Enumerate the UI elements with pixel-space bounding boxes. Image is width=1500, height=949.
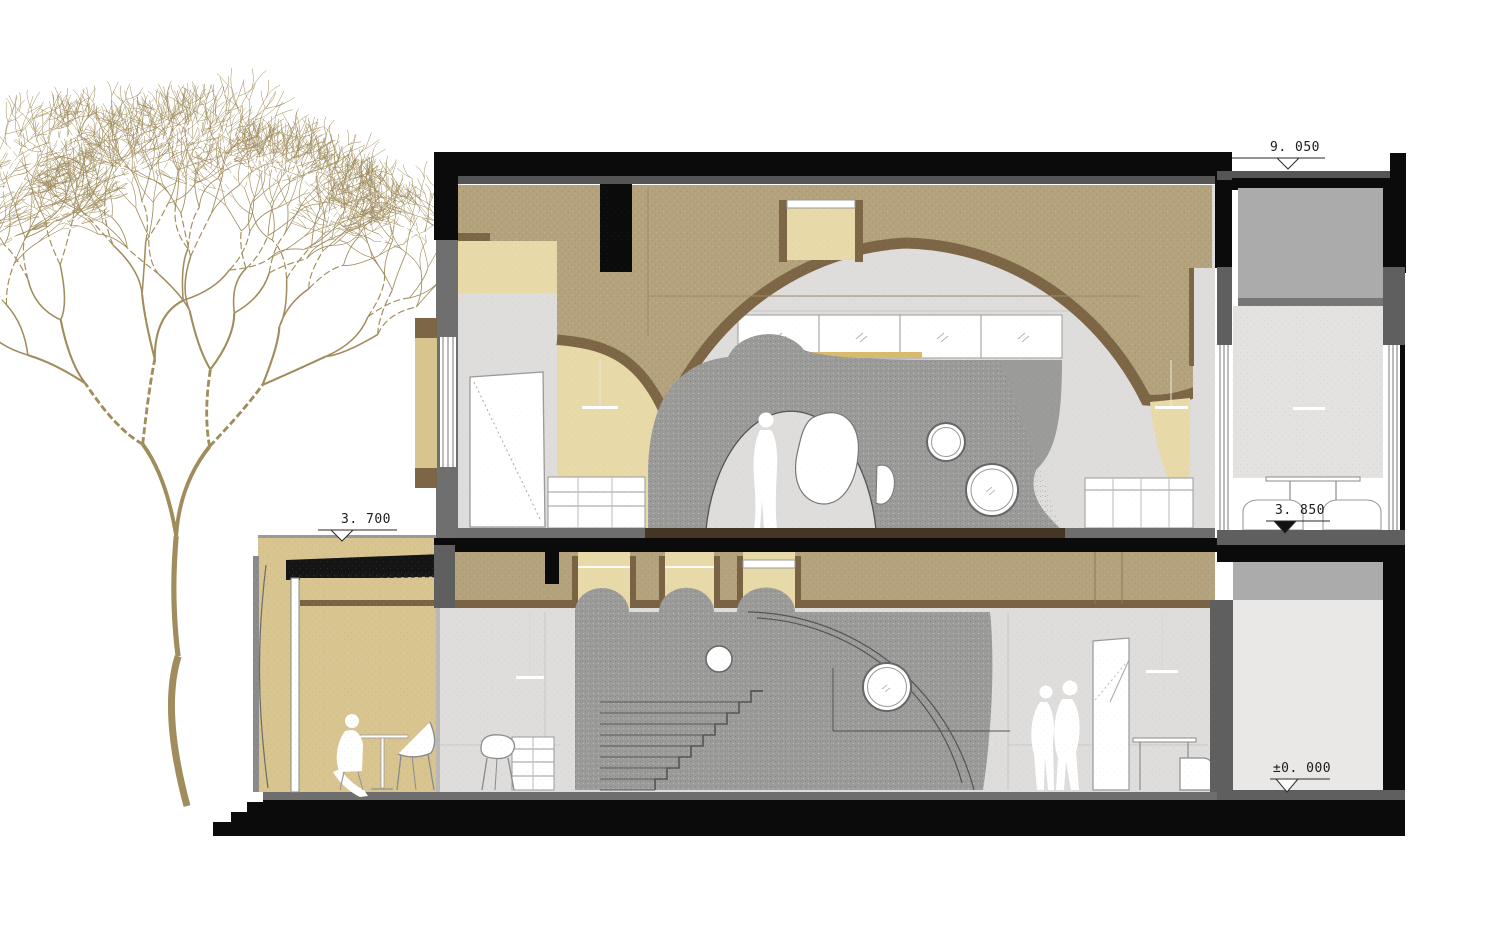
- pendant-lamp: [1293, 407, 1325, 410]
- balcony-parapet: [415, 318, 437, 488]
- level-annotation-roof: 9. 050: [1255, 140, 1335, 155]
- level-annotation-upper-floor: 3. 850: [1268, 503, 1332, 518]
- floor-slab: [434, 528, 1232, 552]
- window-mullion-divider: [1217, 345, 1232, 530]
- ceiling-column: [545, 552, 559, 584]
- texture-overlay: [455, 185, 1215, 530]
- elevator-box: [1238, 188, 1383, 298]
- lower-ceiling-band: [448, 552, 1215, 614]
- window-mullion-left: [440, 337, 456, 467]
- texture-overlay: [437, 608, 1215, 792]
- architectural-section-drawing: 9. 050 3. 700 3. 850 ±0. 000: [0, 0, 1500, 949]
- stair-shaft: [1217, 153, 1406, 800]
- window-mullion-shaft-right: [1386, 345, 1405, 531]
- level-annotation-canopy: 3. 700: [328, 512, 404, 527]
- texture-overlay: [253, 535, 437, 792]
- level-annotation-ground: ±0. 000: [1266, 761, 1338, 776]
